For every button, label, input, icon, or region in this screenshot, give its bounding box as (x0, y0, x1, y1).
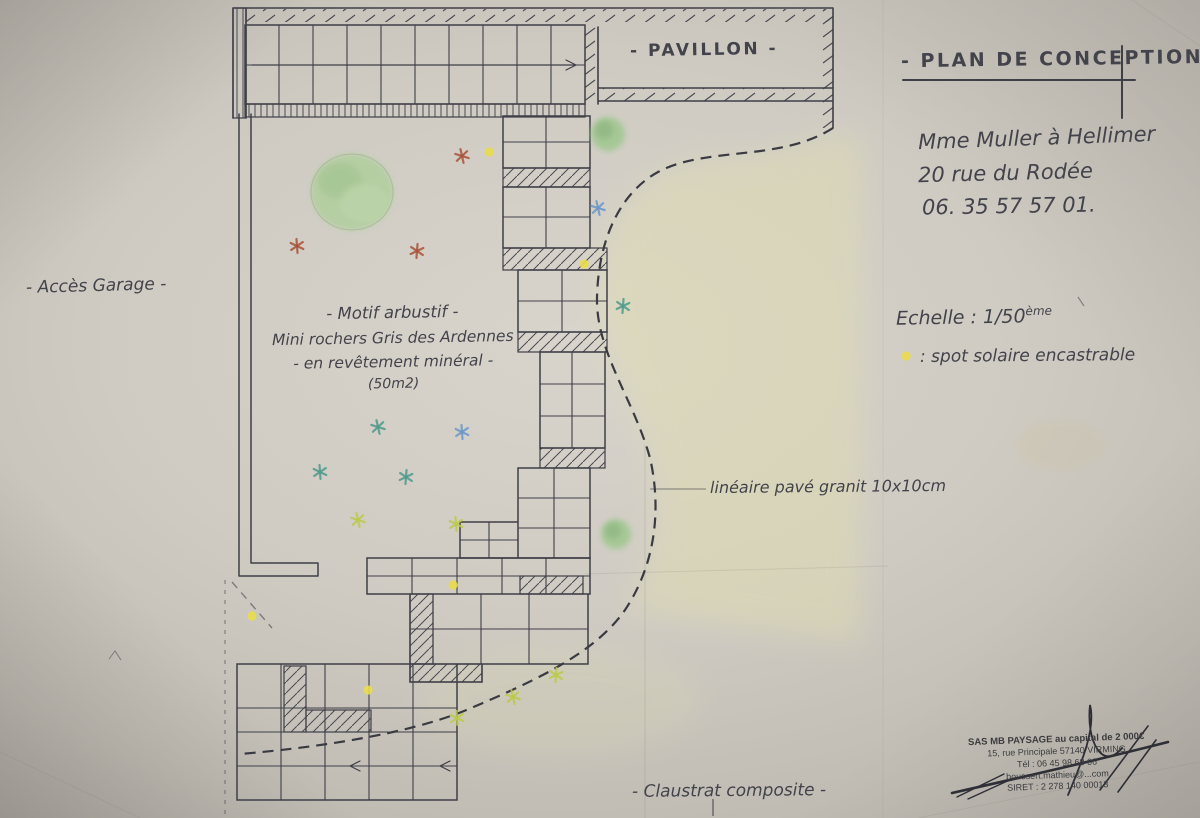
motif-line3: - en revêtement minéral - (268, 347, 518, 375)
lawn-tint (420, 132, 1105, 755)
shrub-small-top (591, 117, 625, 151)
annotation-motif: - Motif arbustif - Mini rochers Gris des… (267, 298, 519, 398)
plan-title: - PLAN DE CONCEPTION - (901, 46, 1200, 72)
shrub-small-bottom (601, 519, 631, 549)
plan-drawing (0, 0, 1200, 818)
scale-sup: ème (1025, 304, 1052, 318)
client-phone: 06. 35 57 57 01. (922, 192, 1096, 219)
plan-photo: - PLAN DE CONCEPTION - Mme Muller à Hell… (0, 0, 1200, 818)
label-claustra: - Claustrat composite - (632, 780, 826, 802)
scale-value: Echelle : 1/50 (896, 305, 1026, 329)
label-lineaire-pave: linéaire pavé granit 10x10cm (710, 476, 946, 497)
scale-note: Echelle : 1/50ème (896, 304, 1052, 330)
plant-star-symbols (291, 149, 630, 725)
label-acces-garage: - Accès Garage - (26, 274, 167, 298)
client-street: 20 rue du Rodée (918, 159, 1093, 188)
company-stamp: SAS MB PAYSAGE au capital de 2 000€ 15, … (961, 731, 1153, 797)
tree-large (311, 154, 393, 230)
legend-spot: : spot solaire encastrable (920, 345, 1135, 367)
terrace-grid (245, 25, 585, 104)
motif-line4: (50m2) (268, 371, 518, 397)
label-pavillon: - PAVILLON - (630, 39, 778, 62)
